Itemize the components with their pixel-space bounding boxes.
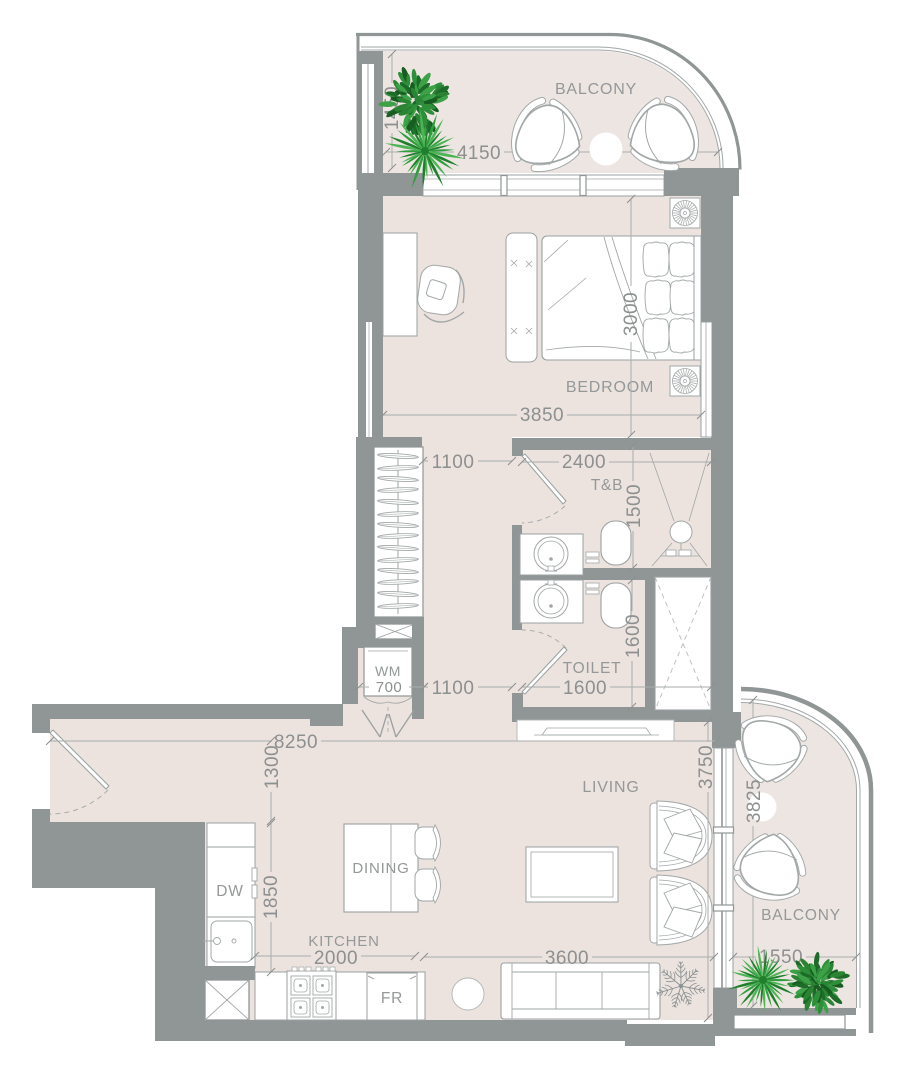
svg-text:3000: 3000 <box>621 292 642 336</box>
svg-text:3825: 3825 <box>744 779 765 823</box>
svg-text:T&B: T&B <box>591 477 624 494</box>
svg-text:TOILET: TOILET <box>563 660 622 677</box>
svg-text:1300: 1300 <box>262 745 283 789</box>
svg-text:DINING: DINING <box>352 860 409 877</box>
svg-text:4150: 4150 <box>457 143 501 164</box>
svg-text:1500: 1500 <box>624 484 645 528</box>
svg-text:2000: 2000 <box>314 948 358 969</box>
svg-text:1600: 1600 <box>563 678 607 699</box>
svg-text:3750: 3750 <box>696 745 717 789</box>
svg-text:FR: FR <box>381 990 403 1007</box>
svg-text:2400: 2400 <box>562 452 606 473</box>
svg-text:700: 700 <box>376 679 403 696</box>
svg-text:1600: 1600 <box>623 614 644 658</box>
svg-text:BALCONY: BALCONY <box>761 907 841 924</box>
svg-text:KITCHEN: KITCHEN <box>308 933 379 950</box>
svg-text:WM: WM <box>375 663 401 679</box>
svg-text:3850: 3850 <box>520 405 564 426</box>
svg-text:1100: 1100 <box>432 452 475 473</box>
svg-text:LIVING: LIVING <box>582 779 639 796</box>
svg-text:BEDROOM: BEDROOM <box>566 379 654 396</box>
svg-text:1100: 1100 <box>432 678 475 699</box>
svg-text:1850: 1850 <box>261 875 282 919</box>
svg-text:BALCONY: BALCONY <box>555 81 637 98</box>
svg-text:DW: DW <box>216 883 243 900</box>
svg-text:3600: 3600 <box>545 948 589 969</box>
